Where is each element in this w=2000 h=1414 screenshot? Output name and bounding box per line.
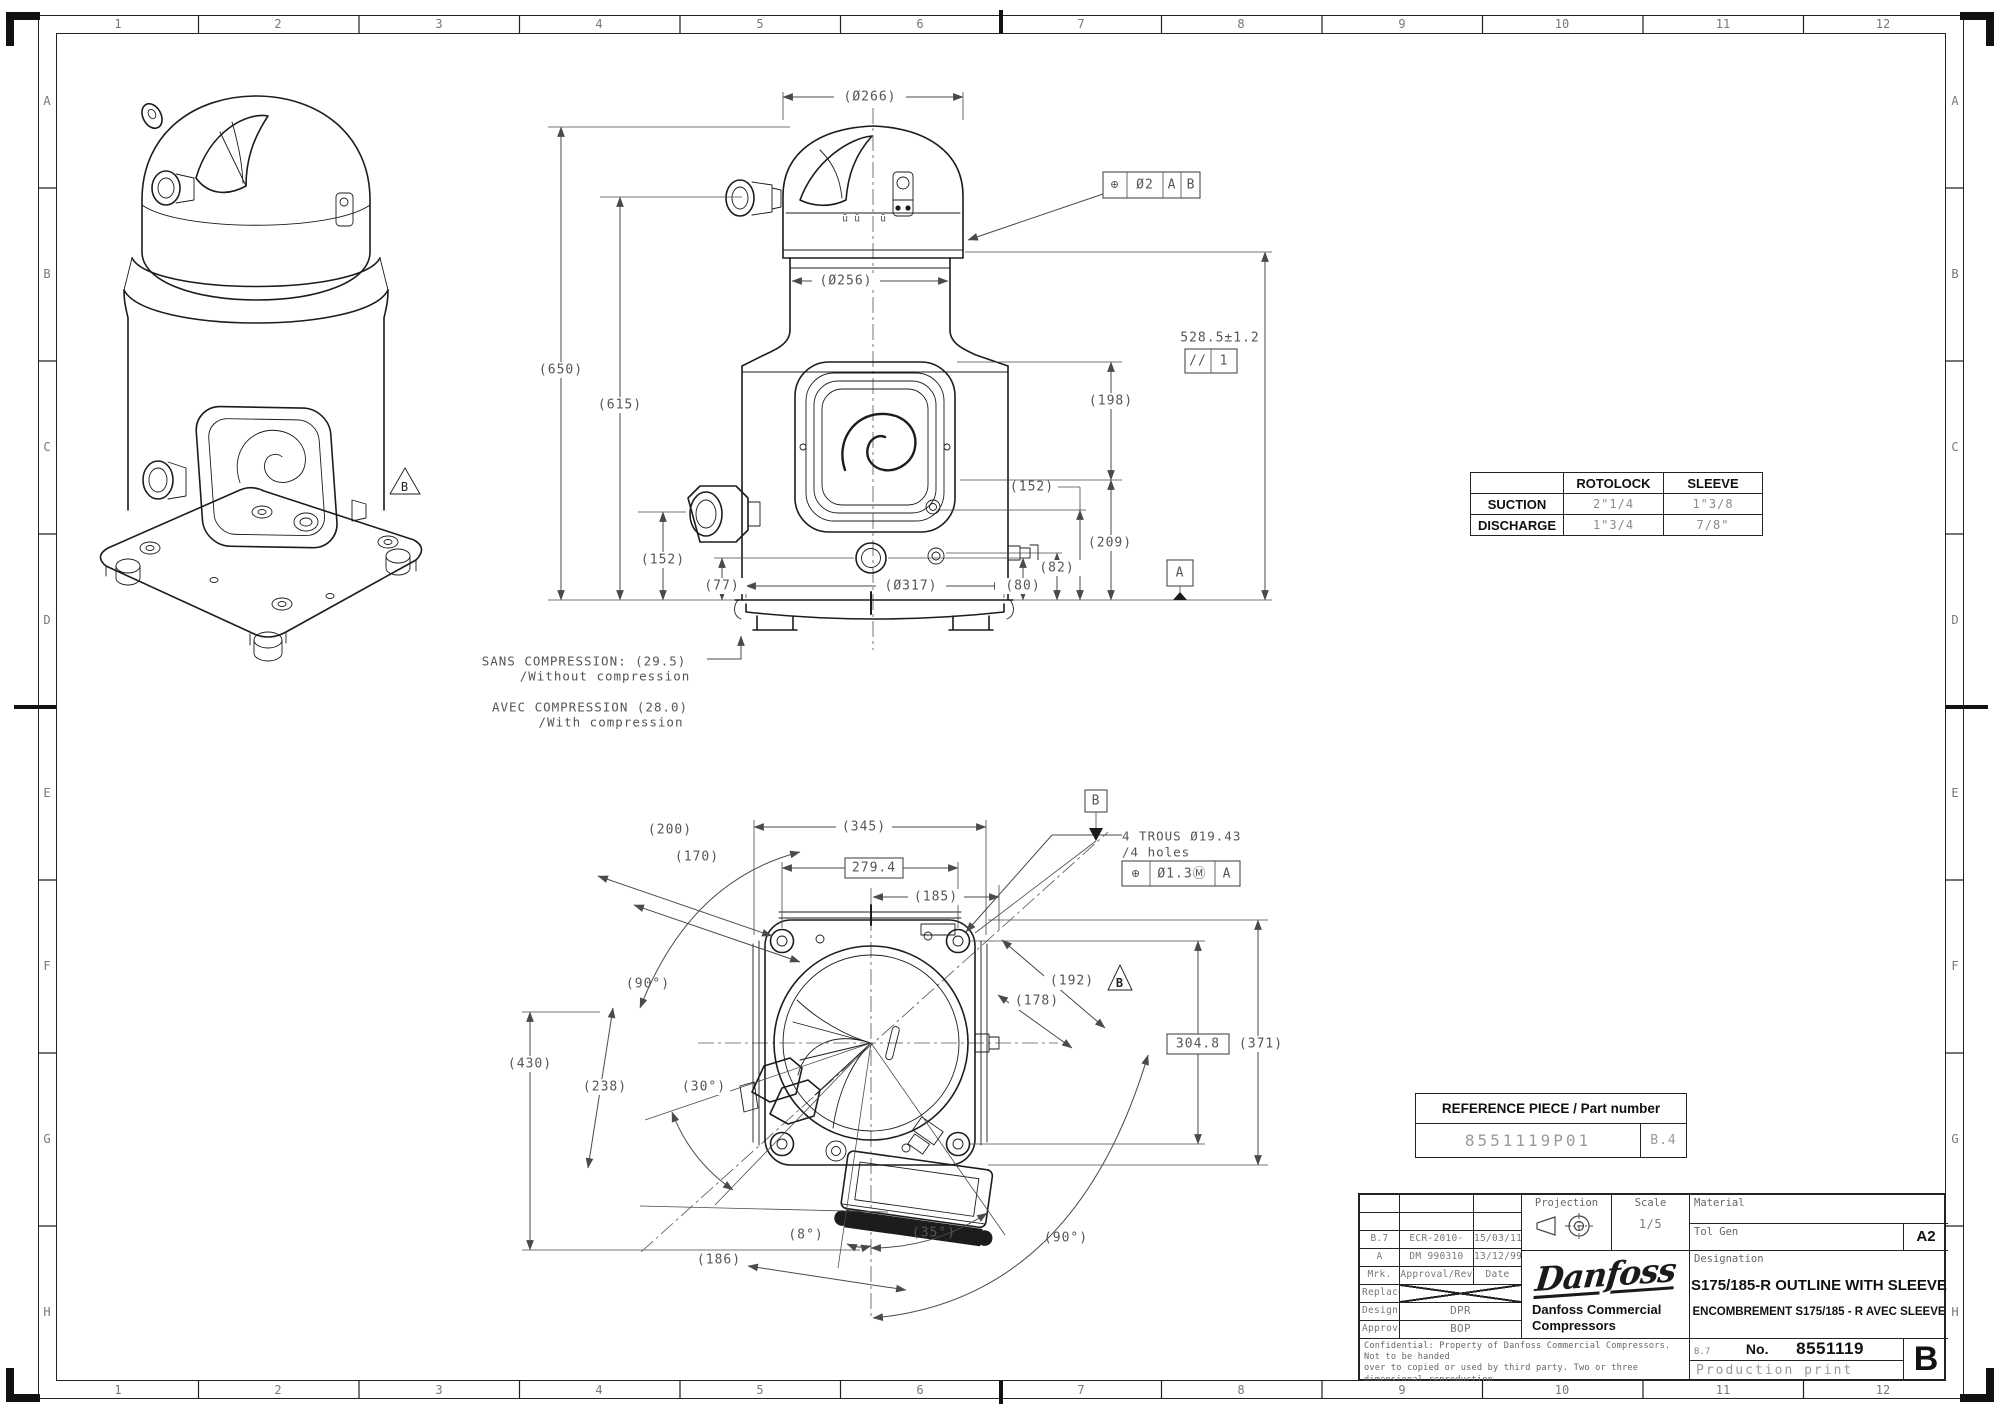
drawing-number: 8551119 [1796,1339,1864,1358]
dim-192: (192) [1050,974,1094,989]
designation-label: Designation [1690,1251,1948,1267]
rev-mrk-b7: B.7 [1360,1231,1400,1249]
no-label: No. [1746,1341,1769,1357]
svg-text:⊕: ⊕ [1132,867,1141,882]
format-cell: A2 [1904,1224,1948,1251]
logo-cell: Danfoss Danfoss Commercial Compressors [1522,1251,1690,1339]
danfoss-logo: Danfoss [1522,1251,1690,1300]
projection-label: Projection [1522,1195,1611,1211]
title-block: B.7 ECR-2010-2897 15/03/11 A DM 990310 1… [1358,1193,1946,1381]
flag-b-triangle: B [1108,965,1132,990]
weld-mark-2: ū [880,214,886,225]
note-avec-compression-2: /With compression [539,715,684,730]
dim-dia266: (Ø266) [844,90,897,105]
svg-text:A: A [1168,178,1177,193]
dim-186: (186) [697,1253,741,1268]
holes-note-2: /4 holes [1122,845,1190,860]
rev-header-date: Date [1474,1267,1522,1285]
scale-value: 1/5 [1612,1217,1689,1231]
dim-209: (209) [1088,536,1132,551]
fcf-parallelism: // 1 [1185,349,1237,373]
front-dim-backgrounds [533,89,1139,594]
no-prefix: B.7 [1694,1347,1710,1357]
number-cell: B.7 No. 8551119 [1690,1339,1904,1361]
angle-30: (30°) [682,1080,726,1095]
designation-cell: Designation S175/185-R OUTLINE WITH SLEE… [1690,1251,1948,1339]
dim-615: (615) [598,398,642,413]
row-suction-label: SUCTION [1471,494,1564,515]
angle-8: (8°) [788,1228,823,1243]
svg-text:B: B [1116,976,1124,990]
bottom-dimensions [522,820,1268,1318]
iso-view: B [100,96,421,661]
dim-371: (371) [1239,1037,1283,1052]
svg-text://: // [1189,354,1207,369]
angle-35: (35°) [912,1226,956,1241]
rev-mrk-a: A [1360,1249,1400,1267]
note-sans-compression-2: /Without compression [520,669,691,684]
print-type-cell: Production print [1690,1361,1904,1381]
connection-table: ROTOLOCK SLEEVE SUCTION 2"1/4 1"3/8 DISC… [1470,472,1763,536]
dim-152-left: (152) [641,553,685,568]
dim-185: (185) [914,890,958,905]
svg-text:Ø2: Ø2 [1136,178,1154,193]
table-row: DISCHARGE 1"3/4 7/8" [1471,515,1763,536]
datum-a: A [1167,560,1193,600]
fcf-holes: ⊕ Ø1.3Ⓜ A [1122,861,1240,886]
holes-note-1: 4 TROUS Ø19.43 [1122,829,1241,844]
scale-cell: Scale 1/5 [1612,1195,1690,1251]
reference-table: REFERENCE PIECE / Part number 8551119P01… [1415,1093,1687,1158]
iso-flag-b-label: B [401,480,409,494]
dim-200: (200) [648,823,692,838]
svg-text:B: B [1092,794,1101,809]
dim-77: (77) [704,579,739,594]
note-sans-compression-1: SANS COMPRESSION: (29.5) [482,654,687,669]
projection-symbol-icon [1527,1211,1607,1241]
dim-152-right: (152) [1010,480,1054,495]
dim-345: (345) [842,820,886,835]
designation-line-1: S175/185-R OUTLINE WITH SLEEVE [1690,1277,1948,1294]
rev-ref-b7: ECR-2010-2897 [1400,1231,1474,1249]
dim-178: (178) [1015,994,1059,1009]
approval-value: BOP [1400,1321,1522,1339]
border-ticks [38,15,1964,1399]
table-row: SUCTION 2"1/4 1"3/8 [1471,494,1763,515]
dim-dia317: (Ø317) [885,579,938,594]
reference-header: REFERENCE PIECE / Part number [1416,1094,1686,1124]
note-avec-compression-1: AVEC COMPRESSION (28.0) [492,700,688,715]
dim-238: (238) [583,1080,627,1095]
rev-header-mrk: Mrk. [1360,1267,1400,1285]
company-line-2: Compressors [1532,1318,1689,1334]
dim-430: (430) [508,1057,552,1072]
material-label: Material [1690,1195,1948,1211]
dim-650: (650) [539,363,583,378]
bottom-view: (200) (170) (345) 279.4 (185) (90°) (430… [502,790,1289,1318]
col-sleeve: SLEEVE [1664,473,1763,494]
drawing-sheet: 1 2 3 4 5 6 7 8 9 10 11 12 1 2 3 4 5 6 7… [0,0,2000,1414]
replace-label: Replace [1360,1285,1400,1303]
projection-cell: Projection [1522,1195,1612,1251]
svg-text:B: B [1187,178,1196,193]
replace-crossed-cell [1400,1285,1522,1303]
svg-text:A: A [1176,566,1185,581]
tolgen-cell: Tol Gen [1690,1224,1904,1251]
datum-b: B [1085,790,1107,841]
design-label: Design [1360,1303,1400,1321]
dim-198: (198) [1089,394,1133,409]
svg-text:1: 1 [1220,354,1229,369]
designation-line-2: ENCOMBREMENT S175/185 - R AVEC SLEEVE [1690,1306,1948,1318]
scale-label: Scale [1612,1195,1689,1211]
revision-letter-cell: B [1904,1339,1948,1381]
svg-text:⊕: ⊕ [1111,178,1120,193]
dim-dia256: (Ø256) [820,274,873,289]
fcf-position-top: ⊕ Ø2 A B [1103,172,1200,198]
dim-279: 279.4 [852,861,896,876]
material-cell: Material [1690,1195,1948,1224]
svg-text:Ø1.3Ⓜ: Ø1.3Ⓜ [1157,867,1206,882]
dim-170: (170) [675,850,719,865]
dim-528: 528.5±1.2 [1180,331,1259,346]
angle-90-top: (90°) [626,977,670,992]
dim-80: (80) [1005,579,1040,594]
tol-gen-label: Tol Gen [1690,1224,1903,1240]
svg-text:A: A [1223,867,1232,882]
table-row: 8551119P01 B.4 [1416,1124,1686,1157]
rev-header-approval: Approval/Rev [1400,1267,1474,1285]
col-rotolock: ROTOLOCK [1564,473,1664,494]
approval-label: Approval [1360,1321,1400,1339]
part-revision: B.4 [1641,1124,1686,1157]
dim-82: (82) [1039,561,1074,576]
dim-304: 304.8 [1176,1037,1220,1052]
front-view: ū ū ū [482,89,1272,730]
rev-date-a: 13/12/99 [1474,1249,1522,1267]
confidential-note: Confidential: Property of Danfoss Commer… [1360,1339,1690,1381]
angle-90-bottom: (90°) [1044,1231,1088,1246]
rev-date-b7: 15/03/11 [1474,1231,1522,1249]
part-number: 8551119P01 [1416,1124,1641,1157]
design-value: DPR [1400,1303,1522,1321]
row-discharge-label: DISCHARGE [1471,515,1564,536]
weld-mark-1: ū ū [842,214,860,225]
rev-ref-a: DM 990310 [1400,1249,1474,1267]
company-line-1: Danfoss Commercial [1532,1302,1689,1318]
iso-datum-flag-b: B [390,468,420,494]
